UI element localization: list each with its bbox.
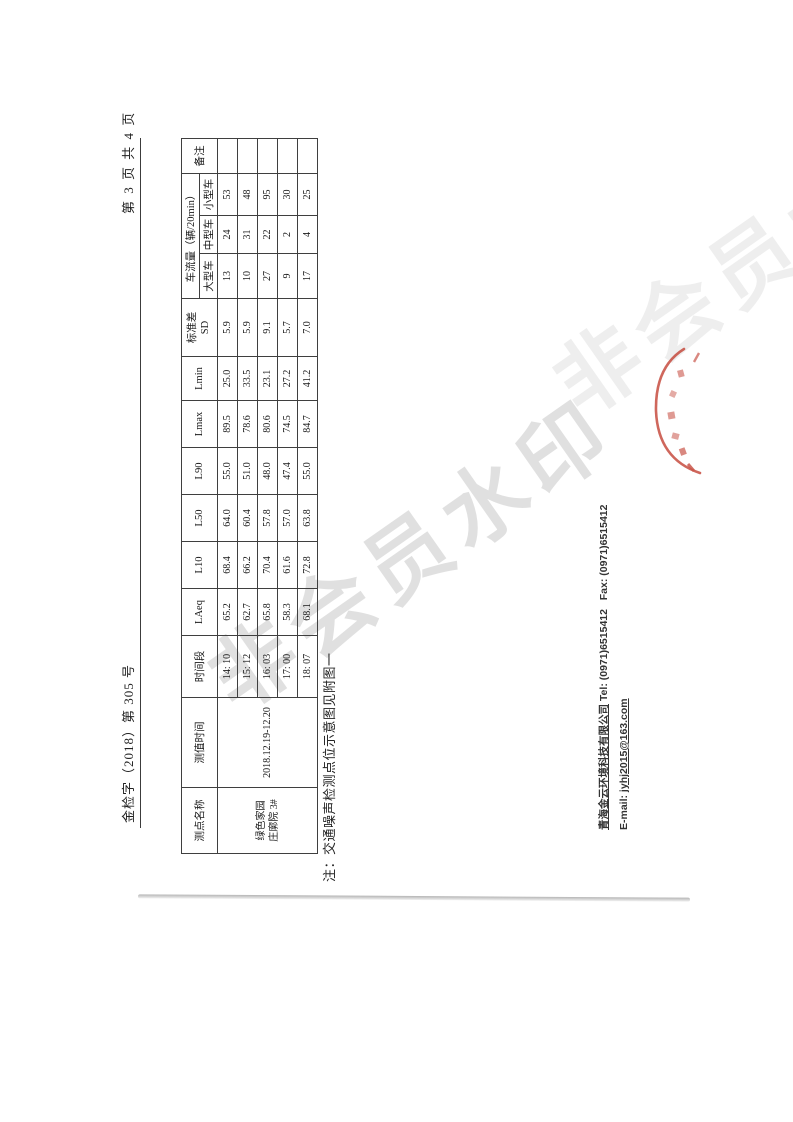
cell-l90: 51.0: [238, 448, 258, 495]
email-label: E-mail:: [618, 795, 630, 830]
col-header-l50: L50: [182, 495, 218, 542]
cell-small: 95: [258, 174, 278, 216]
cell-lmax: 89.5: [218, 401, 238, 448]
cell-time: 18: 07: [298, 636, 318, 698]
col-header-remark: 备注: [182, 139, 218, 174]
footer-line-2: E-mail: jyhj2015@163.com: [618, 505, 630, 830]
cell-medium: 2: [278, 216, 298, 254]
noise-monitoring-table: 测点名称 测值时间 时间段 LAeq L10 L50 L90 Lmax Lmin…: [181, 138, 318, 854]
table-body: 绿色家园 庄廓院 3#2018.12.19-12.2014: 1065.268.…: [218, 139, 318, 854]
cell-lmax: 78.6: [238, 401, 258, 448]
cell-time: 14: 10: [218, 636, 238, 698]
cell-l10: 61.6: [278, 542, 298, 589]
cell-remark: [298, 139, 318, 174]
cell-large: 17: [298, 254, 318, 299]
cell-remark: [218, 139, 238, 174]
cell-time: 16: 03: [258, 636, 278, 698]
cell-small: 25: [298, 174, 318, 216]
col-header-medium-vehicle: 中型车: [200, 216, 218, 254]
fax-number: (0971)6515412: [598, 505, 610, 576]
cell-l50: 57.0: [278, 495, 298, 542]
col-header-measure-time: 测值时间: [182, 698, 218, 788]
cell-medium: 4: [298, 216, 318, 254]
document-number: 金检字（2018）第 305 号: [118, 664, 137, 823]
cell-point-name: 绿色家园 庄廓院 3#: [218, 788, 318, 854]
cell-large: 27: [258, 254, 278, 299]
cell-small: 53: [218, 174, 238, 216]
col-header-small-vehicle: 小型车: [200, 174, 218, 216]
cell-lmax: 84.7: [298, 401, 318, 448]
cell-l10: 72.8: [298, 542, 318, 589]
cell-laeq: 68.1: [298, 589, 318, 636]
cell-l50: 63.8: [298, 495, 318, 542]
cell-small: 30: [278, 174, 298, 216]
company-name: 青海金云环境科技有限公司: [598, 704, 610, 830]
col-header-time-period: 时间段: [182, 636, 218, 698]
page-indicator: 第 3 页 共 4 页: [118, 111, 137, 214]
cell-laeq: 65.2: [218, 589, 238, 636]
cell-l50: 64.0: [218, 495, 238, 542]
col-header-laeq: LAeq: [182, 589, 218, 636]
cell-remark: [278, 139, 298, 174]
cell-lmin: 27.2: [278, 357, 298, 401]
cell-lmax: 80.6: [258, 401, 278, 448]
sd-label-en: SD: [200, 321, 211, 334]
table-note: 注：交通噪声检测点位示意图见附图一: [319, 652, 338, 882]
cell-large: 13: [218, 254, 238, 299]
cell-measure-time: 2018.12.19-12.20: [218, 698, 318, 788]
cell-l90: 47.4: [278, 448, 298, 495]
cell-lmin: 41.2: [298, 357, 318, 401]
table-row: 绿色家园 庄廓院 3#2018.12.19-12.2014: 1065.268.…: [218, 139, 238, 854]
cell-sd: 9.1: [258, 299, 278, 357]
scanned-report-page: { "page": { "doc_number": "金检字（2018）第 30…: [0, 0, 793, 1122]
cell-sd: 7.0: [298, 299, 318, 357]
cell-remark: [258, 139, 278, 174]
col-header-l90: L90: [182, 448, 218, 495]
cell-l90: 55.0: [218, 448, 238, 495]
cell-l90: 48.0: [258, 448, 278, 495]
cell-sd: 5.9: [218, 299, 238, 357]
cell-laeq: 62.7: [238, 589, 258, 636]
sd-label-cn: 标准差: [187, 312, 198, 344]
email-address: jyhj2015@163.com: [618, 698, 630, 792]
cell-l90: 55.0: [298, 448, 318, 495]
tel-number: (0971)6515412: [598, 609, 610, 680]
cell-time: 17: 00: [278, 636, 298, 698]
cell-medium: 22: [258, 216, 278, 254]
cell-sd: 5.9: [238, 299, 258, 357]
cell-laeq: 65.8: [258, 589, 278, 636]
red-seal-fragment-icon: [650, 345, 708, 477]
cell-remark: [238, 139, 258, 174]
cell-l10: 70.4: [258, 542, 278, 589]
cell-l50: 57.8: [258, 495, 278, 542]
col-header-lmin: Lmin: [182, 357, 218, 401]
cell-time: 15: 12: [238, 636, 258, 698]
fax-label: Fax:: [598, 579, 610, 601]
table-header: 测点名称 测值时间 时间段 LAeq L10 L50 L90 Lmax Lmin…: [182, 139, 218, 854]
rotated-document-sheet: 非会员水印 非会员水印 金检字（2018）第 305 号 第 3 页 共 4 页…: [0, 0, 793, 1122]
cell-laeq: 58.3: [278, 589, 298, 636]
cell-large: 10: [238, 254, 258, 299]
col-header-sd: 标准差 SD: [182, 299, 218, 357]
cell-l10: 68.4: [218, 542, 238, 589]
cell-small: 48: [238, 174, 258, 216]
tel-label: Tel:: [598, 683, 610, 701]
footer-contact: 青海金云环境科技有限公司 Tel: (0971)6515412 Fax: (09…: [596, 505, 630, 830]
cell-lmax: 74.5: [278, 401, 298, 448]
cell-medium: 24: [218, 216, 238, 254]
col-header-point-name: 测点名称: [182, 788, 218, 854]
footer-line-1: 青海金云环境科技有限公司 Tel: (0971)6515412 Fax: (09…: [596, 505, 611, 830]
cell-large: 9: [278, 254, 298, 299]
col-header-traffic-group: 车流量（辆/20min）: [182, 174, 200, 299]
cell-lmin: 23.1: [258, 357, 278, 401]
col-header-l10: L10: [182, 542, 218, 589]
col-header-large-vehicle: 大型车: [200, 254, 218, 299]
table-header-row-1: 测点名称 测值时间 时间段 LAeq L10 L50 L90 Lmax Lmin…: [182, 139, 200, 854]
cell-sd: 5.7: [278, 299, 298, 357]
cell-l10: 66.2: [238, 542, 258, 589]
cell-medium: 31: [238, 216, 258, 254]
cell-lmin: 33.5: [238, 357, 258, 401]
cell-l50: 60.4: [238, 495, 258, 542]
col-header-lmax: Lmax: [182, 401, 218, 448]
header-rule: [140, 138, 141, 828]
cell-lmin: 25.0: [218, 357, 238, 401]
